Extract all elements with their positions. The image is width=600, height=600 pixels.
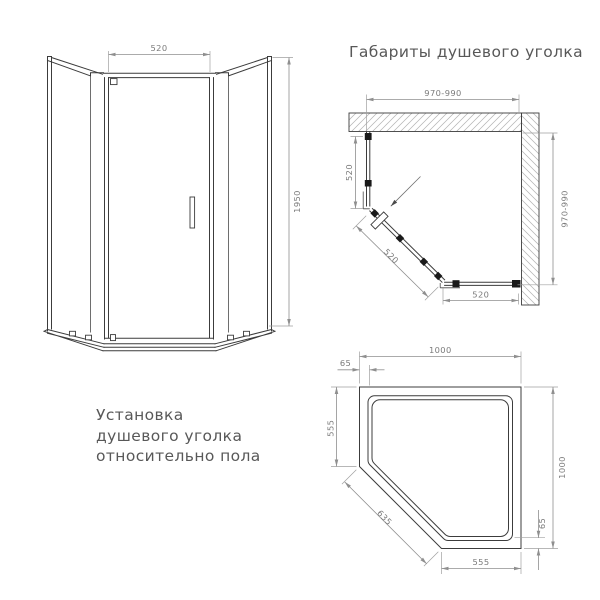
front-height-dim-label: 1950 [292, 190, 302, 213]
curb-foot [86, 335, 92, 340]
curb-foot [244, 331, 250, 336]
drawing-title: Габариты душевого уголка [349, 43, 579, 61]
install-note: Установка душевого уголка относительно п… [96, 405, 261, 467]
tray-plan-drawing: 1000 65 555 635 555 1000 65 [326, 345, 567, 574]
glass-clamp [365, 133, 372, 140]
tray-side-bottom-dim-label: 555 [472, 557, 489, 567]
front-door-width-dim-label: 520 [150, 43, 167, 53]
door-handle-front [190, 197, 195, 228]
curb-foot [228, 335, 234, 340]
tray-diagonal-dim-label: 635 [375, 508, 394, 527]
corner-top-dim-label: 970-990 [424, 88, 461, 98]
door-clamp [434, 272, 442, 280]
technical-drawing-sheet: 520 1950 970-990 520 [0, 0, 600, 600]
tray-rim-offset-right-dim-label: 65 [537, 518, 547, 529]
corner-door-dim-label: 520 [382, 247, 401, 266]
install-note-line1: Установка [96, 405, 261, 426]
tray-width-dim-label: 1000 [429, 345, 452, 355]
tray-depth-dim-label: 1000 [557, 456, 567, 479]
corner-bottom-panel-dim-label: 520 [472, 289, 489, 299]
install-note-line3: относительно пола [96, 446, 261, 467]
wall-top [349, 113, 522, 132]
door-hinge-block [111, 79, 118, 85]
corner-top-view-drawing: 970-990 520 520 520 970-990 [344, 88, 570, 305]
door-opening-arrow [391, 177, 421, 207]
wall-right [522, 113, 540, 305]
corner-left-panel-dim-label: 520 [344, 164, 354, 181]
curb-foot [70, 331, 76, 336]
door-clamp [420, 258, 428, 266]
glass-clamp [365, 180, 372, 187]
tray-basin-line [372, 400, 509, 537]
door-clamp [370, 209, 378, 217]
corner-side-dim-label: 970-990 [559, 190, 569, 227]
install-note-line2: душевого уголка [96, 426, 261, 447]
door-clamp [396, 234, 404, 242]
wall-bracket [512, 280, 521, 288]
tray-outer-edge [360, 387, 522, 549]
shower-enclosure-drawing: 520 1950 970-990 520 [0, 0, 600, 600]
front-view-drawing: 520 1950 [44, 43, 302, 351]
door-bottom-guide [111, 335, 116, 341]
tray-rim-offset-top-dim-label: 65 [340, 358, 351, 368]
glass-clamp [453, 280, 460, 287]
tray-side-left-dim-label: 555 [326, 420, 336, 437]
